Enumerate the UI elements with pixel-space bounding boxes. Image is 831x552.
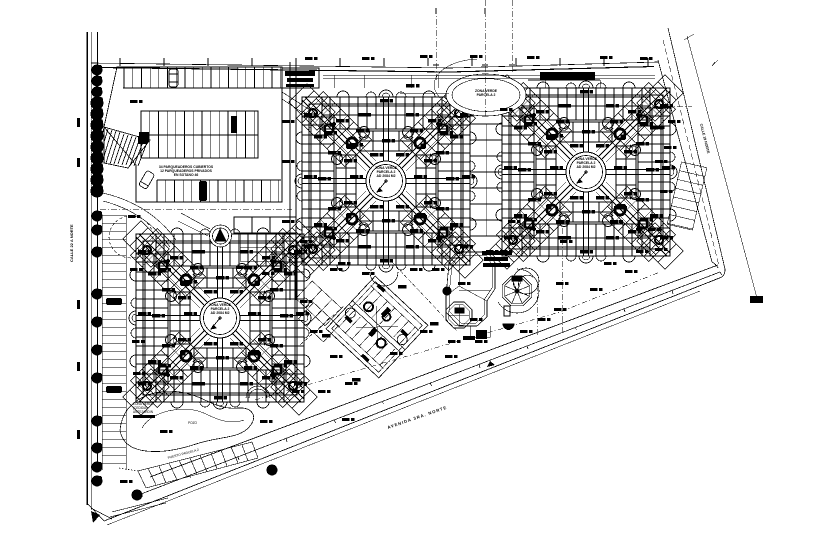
svg-text:POZO: POZO [188,421,198,425]
svg-text:AD 2084 M2: AD 2084 M2 [576,165,595,169]
svg-text:AD 2084 M2: AD 2084 M2 [210,311,229,315]
svg-text:AD 2084 M2: AD 2084 M2 [376,174,395,178]
svg-text:PARCELA 2: PARCELA 2 [477,93,496,97]
svg-text:CALLE 22 A NORTE: CALLE 22 A NORTE [69,224,74,262]
svg-text:ANTEJARDIN: ANTEJARDIN [133,410,154,414]
svg-text:EN SOTANO 46: EN SOTANO 46 [174,173,199,177]
